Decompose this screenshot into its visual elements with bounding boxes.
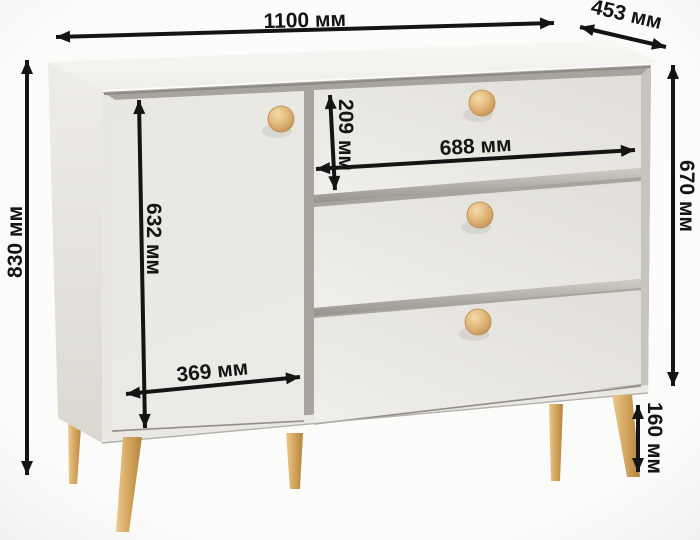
dimension-label-top-drawer-height: 209 мм xyxy=(334,99,357,171)
dimension-label-body-height: 670 мм xyxy=(675,160,698,232)
dimension-label-leg-height: 160 мм xyxy=(643,402,666,474)
drawer-1-knob-icon xyxy=(469,90,495,116)
dimension-label-overall-width: 1100 мм xyxy=(263,8,346,33)
dimension-label-drawer-width: 688 мм xyxy=(439,133,512,160)
door-knob-icon xyxy=(268,106,294,132)
drawer-3-knob-icon xyxy=(465,309,491,335)
drawer-2-knob-icon xyxy=(467,202,493,228)
dimension-label-overall-height: 830 мм xyxy=(4,206,27,278)
dimension-diagram: 1100 мм 453 мм 830 мм 670 мм 632 мм 209 … xyxy=(0,0,700,540)
dimension-label-door-height: 632 мм xyxy=(142,203,165,275)
dresser-dimension-drawing: 1100 мм 453 мм 830 мм 670 мм 632 мм 209 … xyxy=(0,0,700,540)
